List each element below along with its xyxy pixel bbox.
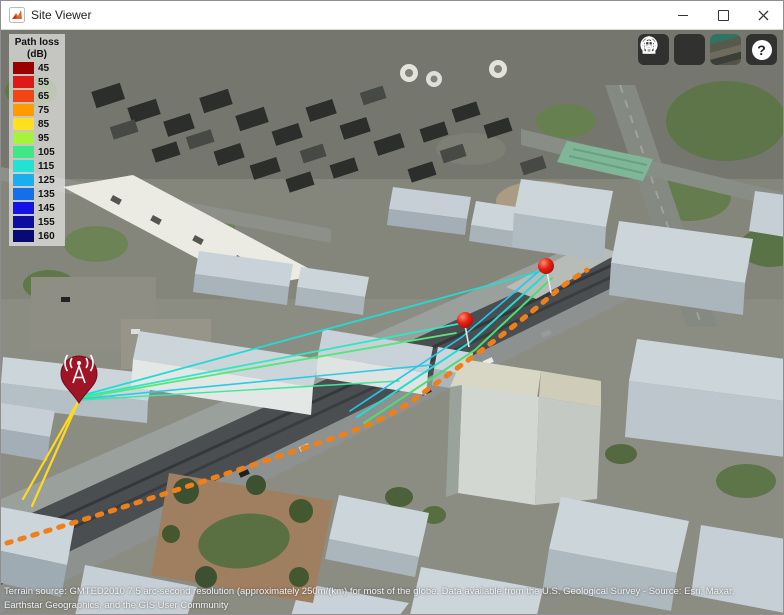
legend-swatch	[13, 216, 34, 228]
legend-swatch	[13, 174, 34, 186]
globe-view-button[interactable]	[674, 34, 705, 65]
window-title: Site Viewer	[31, 8, 91, 22]
legend-swatch	[13, 160, 34, 172]
matlab-app-icon	[9, 7, 25, 23]
legend-value: 75	[38, 105, 49, 116]
minimize-button[interactable]	[663, 1, 703, 29]
legend-item: 115	[13, 160, 61, 172]
minimize-icon	[678, 15, 688, 16]
legend-value: 45	[38, 63, 49, 74]
legend-value: 105	[38, 147, 55, 158]
close-button[interactable]	[743, 1, 783, 29]
legend-swatch	[13, 202, 34, 214]
close-icon	[758, 10, 769, 21]
legend-swatch	[13, 104, 34, 116]
site-viewer-window: Site Viewer	[0, 0, 784, 615]
titlebar[interactable]: Site Viewer	[1, 1, 783, 30]
path-loss-legend: Path loss (dB) 4555657585951051151251351…	[9, 34, 65, 246]
legend-item: 55	[13, 76, 61, 88]
legend-swatch	[13, 118, 34, 130]
legend-swatch	[13, 62, 34, 74]
attribution-line-2: Earthstar Geographics, and the GIS User …	[4, 599, 782, 614]
map-3d-scene[interactable]	[1, 29, 784, 615]
legend-swatch	[13, 76, 34, 88]
legend-value: 145	[38, 203, 55, 214]
help-button[interactable]: ?	[746, 34, 777, 65]
legend-unit: (dB)	[13, 49, 61, 61]
receiver-ball-icon	[457, 312, 473, 328]
legend-title: Path loss	[13, 37, 61, 49]
legend-value: 125	[38, 175, 55, 186]
basemap-thumbnail-icon	[710, 34, 741, 65]
legend-value: 95	[38, 133, 49, 144]
legend-item: 135	[13, 188, 61, 200]
legend-item: 145	[13, 202, 61, 214]
legend-item: 65	[13, 90, 61, 102]
legend-value: 135	[38, 189, 55, 200]
basemap-picker-button[interactable]	[710, 34, 741, 65]
legend-item: 160	[13, 230, 61, 242]
legend-item: 45	[13, 62, 61, 74]
help-icon: ?	[752, 40, 772, 60]
legend-value: 160	[38, 231, 55, 242]
legend-items: 455565758595105115125135145155160	[13, 62, 61, 242]
legend-value: 115	[38, 161, 54, 172]
maximize-icon	[718, 10, 729, 21]
legend-item: 125	[13, 174, 61, 186]
attribution: Terrain source: GMTED2010 7.5 arc-second…	[4, 585, 782, 614]
attribution-line-1: Terrain source: GMTED2010 7.5 arc-second…	[4, 585, 782, 600]
legend-swatch	[13, 188, 34, 200]
legend-value: 55	[38, 77, 49, 88]
legend-item: 105	[13, 146, 61, 158]
legend-item: 95	[13, 132, 61, 144]
legend-value: 85	[38, 119, 49, 130]
legend-value: 65	[38, 91, 49, 102]
legend-swatch	[13, 132, 34, 144]
legend-swatch	[13, 90, 34, 102]
legend-item: 155	[13, 216, 61, 228]
legend-value: 155	[38, 217, 55, 228]
receiver-ball-icon	[538, 258, 554, 274]
map-toolbar: ?	[638, 34, 777, 65]
legend-item: 75	[13, 104, 61, 116]
map-area: Path loss (dB) 4555657585951051151251351…	[1, 29, 784, 615]
legend-swatch	[13, 146, 34, 158]
legend-item: 85	[13, 118, 61, 130]
legend-swatch	[13, 230, 34, 242]
maximize-button[interactable]	[703, 1, 743, 29]
